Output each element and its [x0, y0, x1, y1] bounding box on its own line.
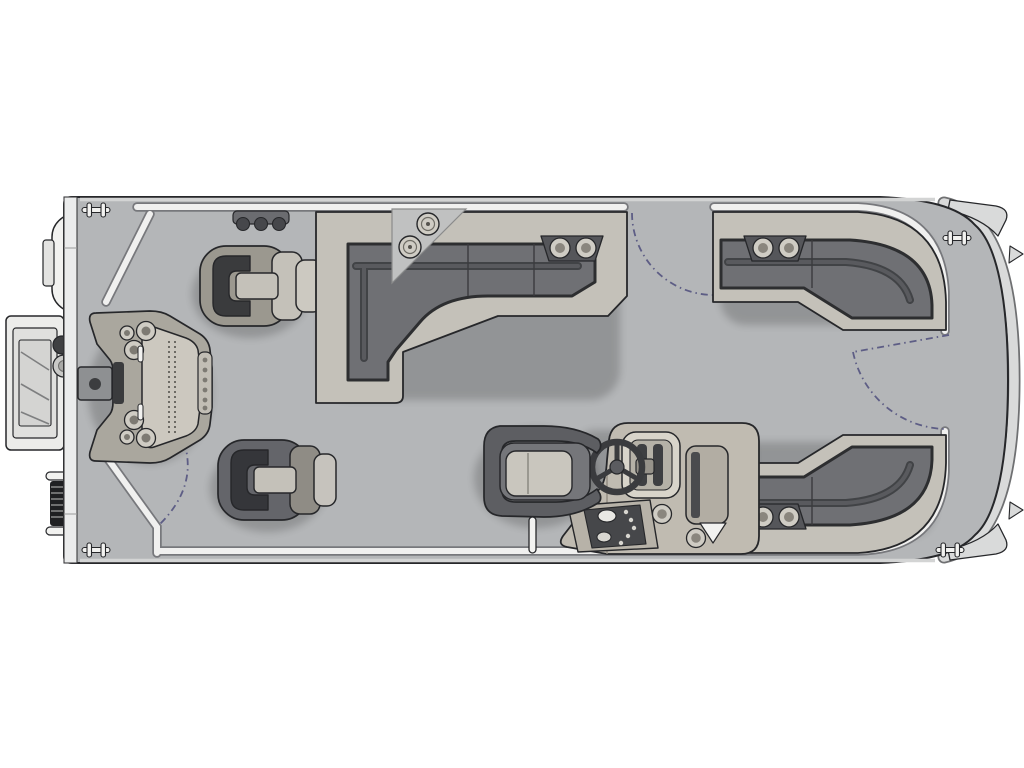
fishing-chair-starboard — [218, 440, 336, 520]
station-notch — [113, 362, 124, 404]
helm-storage-box — [686, 446, 728, 524]
boat-floorplan-canvas — [0, 0, 1024, 768]
bow-port-armrest-tray — [744, 236, 806, 261]
rod-holder-bracket — [233, 211, 289, 231]
ski-tow-post — [529, 517, 536, 553]
bow-spike-bottom — [1009, 502, 1023, 519]
port-lounge-armrest-tray — [541, 236, 603, 261]
pontoon-floorplan-diagram — [0, 0, 1024, 768]
captain-chair — [484, 426, 601, 517]
bow-spike-top — [1009, 246, 1023, 263]
pedestal-table-mount — [78, 367, 112, 400]
stern-hull-band — [64, 197, 77, 563]
